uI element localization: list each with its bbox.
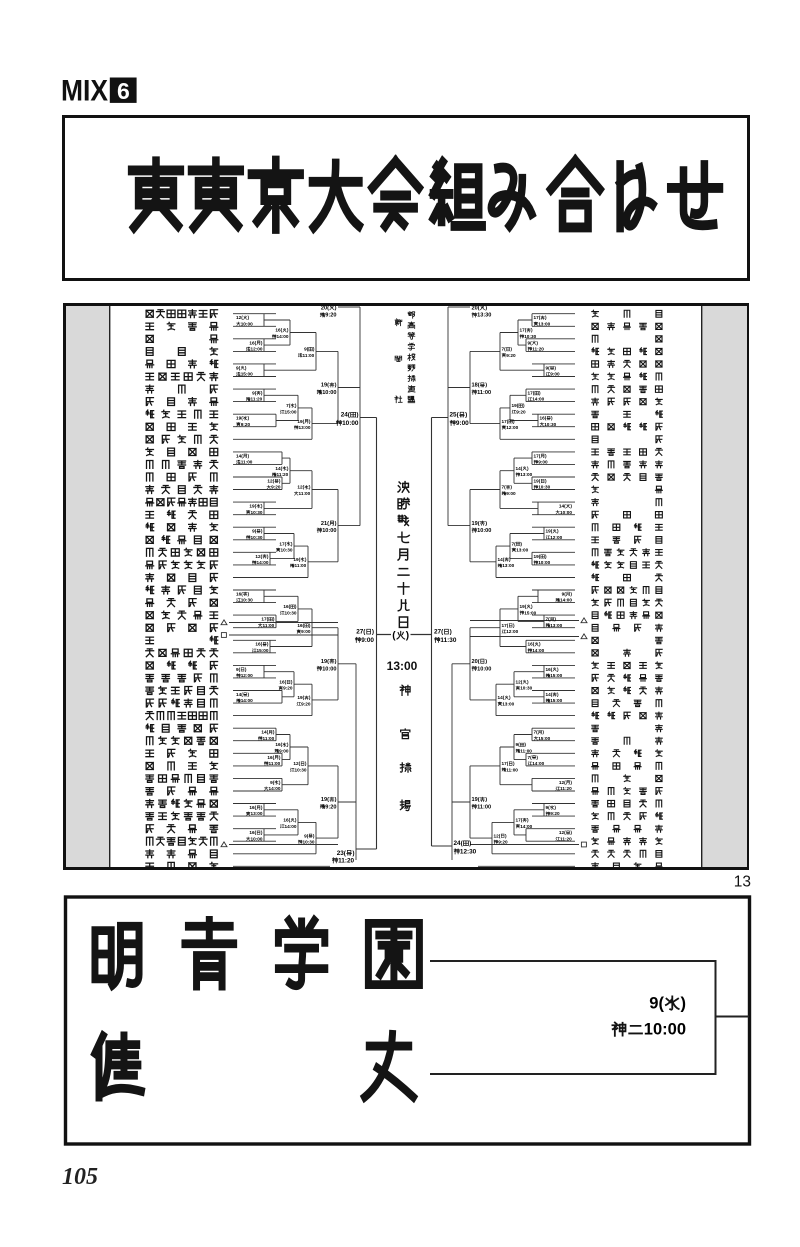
svg-text:17(: 17( — [502, 623, 509, 628]
svg-text:): ) — [485, 383, 487, 389]
svg-text:12(: 12( — [293, 761, 300, 766]
svg-text:9:20: 9:20 — [506, 353, 516, 358]
svg-text:): ) — [465, 412, 467, 419]
svg-text:9:20: 9:20 — [325, 804, 336, 810]
svg-text:10:30: 10:30 — [251, 535, 263, 540]
svg-text:19(: 19( — [472, 797, 480, 803]
svg-text:13:00: 13:00 — [538, 321, 550, 326]
svg-text:19(: 19( — [321, 659, 329, 665]
svg-text:10:30: 10:30 — [285, 610, 297, 615]
svg-text:17(: 17( — [520, 328, 527, 333]
svg-text:6: 6 — [117, 78, 130, 104]
svg-text:9:20: 9:20 — [498, 840, 508, 845]
svg-text:9:20: 9:20 — [271, 485, 281, 490]
svg-text:14:00: 14:00 — [285, 824, 297, 829]
svg-text:17(: 17( — [502, 419, 509, 424]
svg-text:11:00: 11:00 — [477, 804, 491, 810]
svg-text:19(: 19( — [534, 479, 541, 484]
svg-text:11:00: 11:00 — [295, 563, 307, 568]
svg-text:10:30: 10:30 — [524, 334, 536, 339]
svg-text:13:00: 13:00 — [251, 811, 263, 816]
svg-text:14:00: 14:00 — [241, 698, 253, 703]
svg-text:14(: 14( — [275, 466, 282, 471]
svg-text:12(: 12( — [516, 679, 523, 684]
svg-text:14:00: 14:00 — [532, 761, 544, 766]
svg-text:19(: 19( — [534, 554, 541, 559]
svg-text:19(: 19( — [293, 557, 300, 562]
svg-text:14(: 14( — [498, 695, 505, 700]
svg-text:16(: 16( — [283, 818, 290, 823]
svg-text:14:00: 14:00 — [277, 334, 289, 339]
svg-text:13:00: 13:00 — [502, 701, 514, 706]
svg-text:23(: 23( — [337, 850, 347, 857]
svg-text:10:30: 10:30 — [241, 598, 253, 603]
svg-text:10:30: 10:30 — [251, 510, 263, 515]
svg-text:17(: 17( — [279, 541, 286, 546]
svg-text:20(: 20( — [321, 306, 329, 312]
svg-text:13:00: 13:00 — [387, 659, 418, 673]
svg-text:11:20: 11:20 — [560, 786, 572, 791]
svg-text:15:00: 15:00 — [257, 648, 269, 653]
svg-text:14:00: 14:00 — [560, 598, 572, 603]
svg-text:): ) — [335, 521, 337, 527]
svg-text:11:00: 11:00 — [520, 748, 532, 753]
svg-text:12:00: 12:00 — [251, 347, 263, 352]
svg-text:12(: 12( — [267, 479, 274, 484]
svg-text:19(: 19( — [297, 419, 304, 424]
svg-text:9:20: 9:20 — [516, 409, 526, 414]
svg-text:17(: 17( — [502, 761, 509, 766]
svg-text:13:30: 13:30 — [477, 313, 491, 319]
svg-text:16(: 16( — [283, 604, 290, 609]
svg-text:12(: 12( — [494, 833, 501, 838]
svg-text:13:00: 13:00 — [550, 623, 562, 628]
svg-text:16(: 16( — [236, 592, 243, 597]
svg-text:13:00: 13:00 — [502, 563, 514, 568]
svg-text:11:00: 11:00 — [506, 767, 518, 772]
svg-text:16(: 16( — [546, 667, 553, 672]
svg-text:7(: 7( — [528, 755, 533, 760]
svg-text:12:00: 12:00 — [506, 629, 518, 634]
svg-text:): ) — [352, 850, 354, 857]
svg-text:10:00: 10:00 — [538, 560, 550, 565]
svg-text:11:00: 11:00 — [263, 623, 275, 628]
svg-text:19(: 19( — [236, 416, 243, 421]
svg-text:14(: 14( — [559, 504, 566, 509]
svg-text:9(: 9( — [252, 391, 257, 396]
svg-text:): ) — [335, 306, 337, 312]
svg-text:16(: 16( — [255, 642, 262, 647]
svg-text:10:30: 10:30 — [520, 686, 532, 691]
svg-text:10:00: 10:00 — [322, 666, 336, 672]
svg-text:16(: 16( — [249, 830, 256, 835]
svg-text:9(: 9( — [528, 340, 533, 345]
svg-text:11:30: 11:30 — [440, 637, 456, 644]
svg-text:10:00: 10:00 — [322, 390, 336, 396]
svg-text:10:00: 10:00 — [322, 528, 336, 534]
svg-text:19(: 19( — [472, 521, 480, 527]
svg-text:16(: 16( — [249, 805, 256, 810]
svg-text:19(: 19( — [249, 504, 256, 509]
svg-text:14(: 14( — [236, 453, 243, 458]
svg-text:7(: 7( — [286, 403, 291, 408]
svg-text:MIX: MIX — [61, 75, 108, 108]
svg-text:): ) — [335, 659, 337, 665]
svg-text:10:30: 10:30 — [538, 485, 550, 490]
svg-text:10:00: 10:00 — [477, 666, 491, 672]
svg-text:9(: 9( — [516, 742, 521, 747]
svg-text:9(: 9( — [236, 667, 241, 672]
svg-text:13:00: 13:00 — [299, 425, 311, 430]
svg-text:9(: 9( — [236, 365, 241, 370]
svg-text:): ) — [372, 629, 374, 636]
svg-text:25(: 25( — [450, 412, 460, 419]
svg-text:14:00: 14:00 — [520, 824, 532, 829]
svg-text:12:30: 12:30 — [460, 848, 477, 855]
svg-text:): ) — [469, 840, 471, 847]
svg-text:10:00: 10:00 — [342, 420, 359, 427]
svg-text:7(: 7( — [512, 541, 517, 546]
svg-text:15:00: 15:00 — [550, 673, 562, 678]
svg-text:): ) — [406, 631, 409, 642]
svg-text:14:00: 14:00 — [257, 560, 269, 565]
svg-text:24(: 24( — [341, 412, 351, 419]
svg-text:10:00: 10:00 — [251, 836, 263, 841]
svg-text:9(: 9( — [649, 995, 664, 1013]
svg-text:27(: 27( — [434, 629, 444, 636]
svg-text:17(: 17( — [261, 617, 268, 622]
svg-text:11:20: 11:20 — [277, 472, 289, 477]
svg-text:7(: 7( — [534, 730, 539, 735]
svg-text:9:20: 9:20 — [325, 313, 336, 319]
svg-text:18(: 18( — [472, 383, 480, 389]
svg-text:9(: 9( — [252, 529, 257, 534]
svg-text:16(: 16( — [267, 755, 274, 760]
svg-text:9(: 9( — [546, 365, 551, 370]
svg-text:9:20: 9:20 — [550, 811, 560, 816]
svg-text:10:30: 10:30 — [544, 422, 556, 427]
svg-text:14(: 14( — [546, 692, 553, 697]
svg-text:9(: 9( — [304, 347, 309, 352]
svg-text:15:00: 15:00 — [538, 736, 550, 741]
svg-text:16(: 16( — [297, 623, 304, 628]
svg-text:12(: 12( — [297, 485, 304, 490]
svg-text:11:20: 11:20 — [338, 857, 354, 864]
svg-text:14:00: 14:00 — [532, 648, 544, 653]
svg-text:10:30: 10:30 — [295, 767, 307, 772]
svg-text:16(: 16( — [540, 416, 547, 421]
svg-text:17(: 17( — [534, 315, 541, 320]
svg-text:9(: 9( — [304, 833, 309, 838]
svg-text:16(: 16( — [249, 340, 256, 345]
svg-text:15:00: 15:00 — [241, 372, 253, 377]
svg-text:): ) — [335, 797, 337, 803]
svg-text:11:00: 11:00 — [263, 736, 275, 741]
svg-text:): ) — [681, 995, 687, 1013]
svg-text:20(: 20( — [472, 659, 480, 665]
svg-text:9(: 9( — [546, 805, 551, 810]
svg-text:14(: 14( — [498, 557, 505, 562]
svg-text:9:00: 9:00 — [301, 629, 311, 634]
svg-text:7(: 7( — [546, 617, 551, 622]
svg-text:19(: 19( — [321, 383, 329, 389]
svg-text:10:00: 10:00 — [644, 1021, 686, 1039]
svg-text:16(: 16( — [528, 642, 535, 647]
svg-text:12(: 12( — [559, 780, 566, 785]
svg-text:7(: 7( — [502, 347, 507, 352]
svg-text:16(: 16( — [279, 679, 286, 684]
svg-text:20(: 20( — [472, 306, 480, 312]
svg-text:14(: 14( — [261, 730, 268, 735]
svg-text:): ) — [356, 412, 358, 419]
svg-text:11:20: 11:20 — [532, 347, 544, 352]
svg-text:9:00: 9:00 — [538, 460, 548, 465]
svg-text:9:00: 9:00 — [456, 420, 469, 427]
svg-text:11:00: 11:00 — [303, 353, 315, 358]
svg-text:16(: 16( — [275, 328, 282, 333]
svg-text:15:00: 15:00 — [285, 409, 297, 414]
svg-text:): ) — [485, 797, 487, 803]
svg-text:11:20: 11:20 — [560, 836, 572, 841]
svg-text:9:00: 9:00 — [506, 491, 516, 496]
svg-text:9:20: 9:20 — [241, 422, 251, 427]
svg-text:14(: 14( — [516, 466, 523, 471]
svg-text:9:20: 9:20 — [301, 701, 311, 706]
svg-text:13:00: 13:00 — [520, 472, 532, 477]
svg-text:): ) — [335, 383, 337, 389]
svg-text:10:30: 10:30 — [281, 548, 293, 553]
svg-text:14:00: 14:00 — [532, 397, 544, 402]
svg-text:12:00: 12:00 — [550, 535, 562, 540]
svg-text:13: 13 — [734, 874, 751, 891]
svg-text:27(: 27( — [356, 629, 366, 636]
svg-text:19(: 19( — [297, 695, 304, 700]
svg-text:12(: 12( — [559, 830, 566, 835]
svg-text:15:00: 15:00 — [524, 610, 536, 615]
svg-text:10:30: 10:30 — [303, 840, 315, 845]
svg-text:19(: 19( — [321, 797, 329, 803]
svg-text:105: 105 — [62, 1164, 98, 1190]
svg-text:19(: 19( — [546, 529, 553, 534]
svg-text:12:00: 12:00 — [506, 425, 518, 430]
svg-text:17(: 17( — [534, 453, 541, 458]
svg-text:17(: 17( — [528, 391, 535, 396]
svg-text:9:00: 9:00 — [550, 372, 560, 377]
svg-text:9(: 9( — [562, 592, 567, 597]
svg-text:10:00: 10:00 — [560, 510, 572, 515]
svg-text:9:00: 9:00 — [279, 748, 289, 753]
svg-text:11:00: 11:00 — [269, 761, 281, 766]
svg-text:17(: 17( — [516, 818, 523, 823]
svg-text:9:20: 9:20 — [283, 686, 293, 691]
svg-text:15:00: 15:00 — [550, 698, 562, 703]
svg-text:10:00: 10:00 — [241, 321, 253, 326]
svg-text:12:00: 12:00 — [241, 673, 253, 678]
svg-text:9(: 9( — [270, 780, 275, 785]
svg-text:): ) — [450, 629, 452, 636]
svg-text:16(: 16( — [275, 742, 282, 747]
svg-text:11:00: 11:00 — [241, 460, 253, 465]
svg-text:21(: 21( — [321, 521, 329, 527]
svg-text:14:00: 14:00 — [269, 786, 281, 791]
svg-text:10:00: 10:00 — [477, 528, 491, 534]
svg-text:11:00: 11:00 — [477, 390, 491, 396]
svg-text:): ) — [485, 659, 487, 665]
svg-text:12(: 12( — [236, 315, 243, 320]
svg-text:19(: 19( — [520, 604, 527, 609]
svg-text:): ) — [485, 521, 487, 527]
svg-text:11:00: 11:00 — [299, 491, 311, 496]
svg-text:14(: 14( — [236, 692, 243, 697]
svg-text:): ) — [485, 306, 487, 312]
svg-text:19(: 19( — [512, 403, 519, 408]
svg-text:24(: 24( — [454, 840, 464, 847]
svg-text:7(: 7( — [502, 485, 507, 490]
svg-text:12(: 12( — [255, 554, 262, 559]
svg-text:9:00: 9:00 — [361, 637, 374, 644]
svg-text:11:20: 11:20 — [251, 397, 263, 402]
svg-text:13:00: 13:00 — [516, 548, 528, 553]
